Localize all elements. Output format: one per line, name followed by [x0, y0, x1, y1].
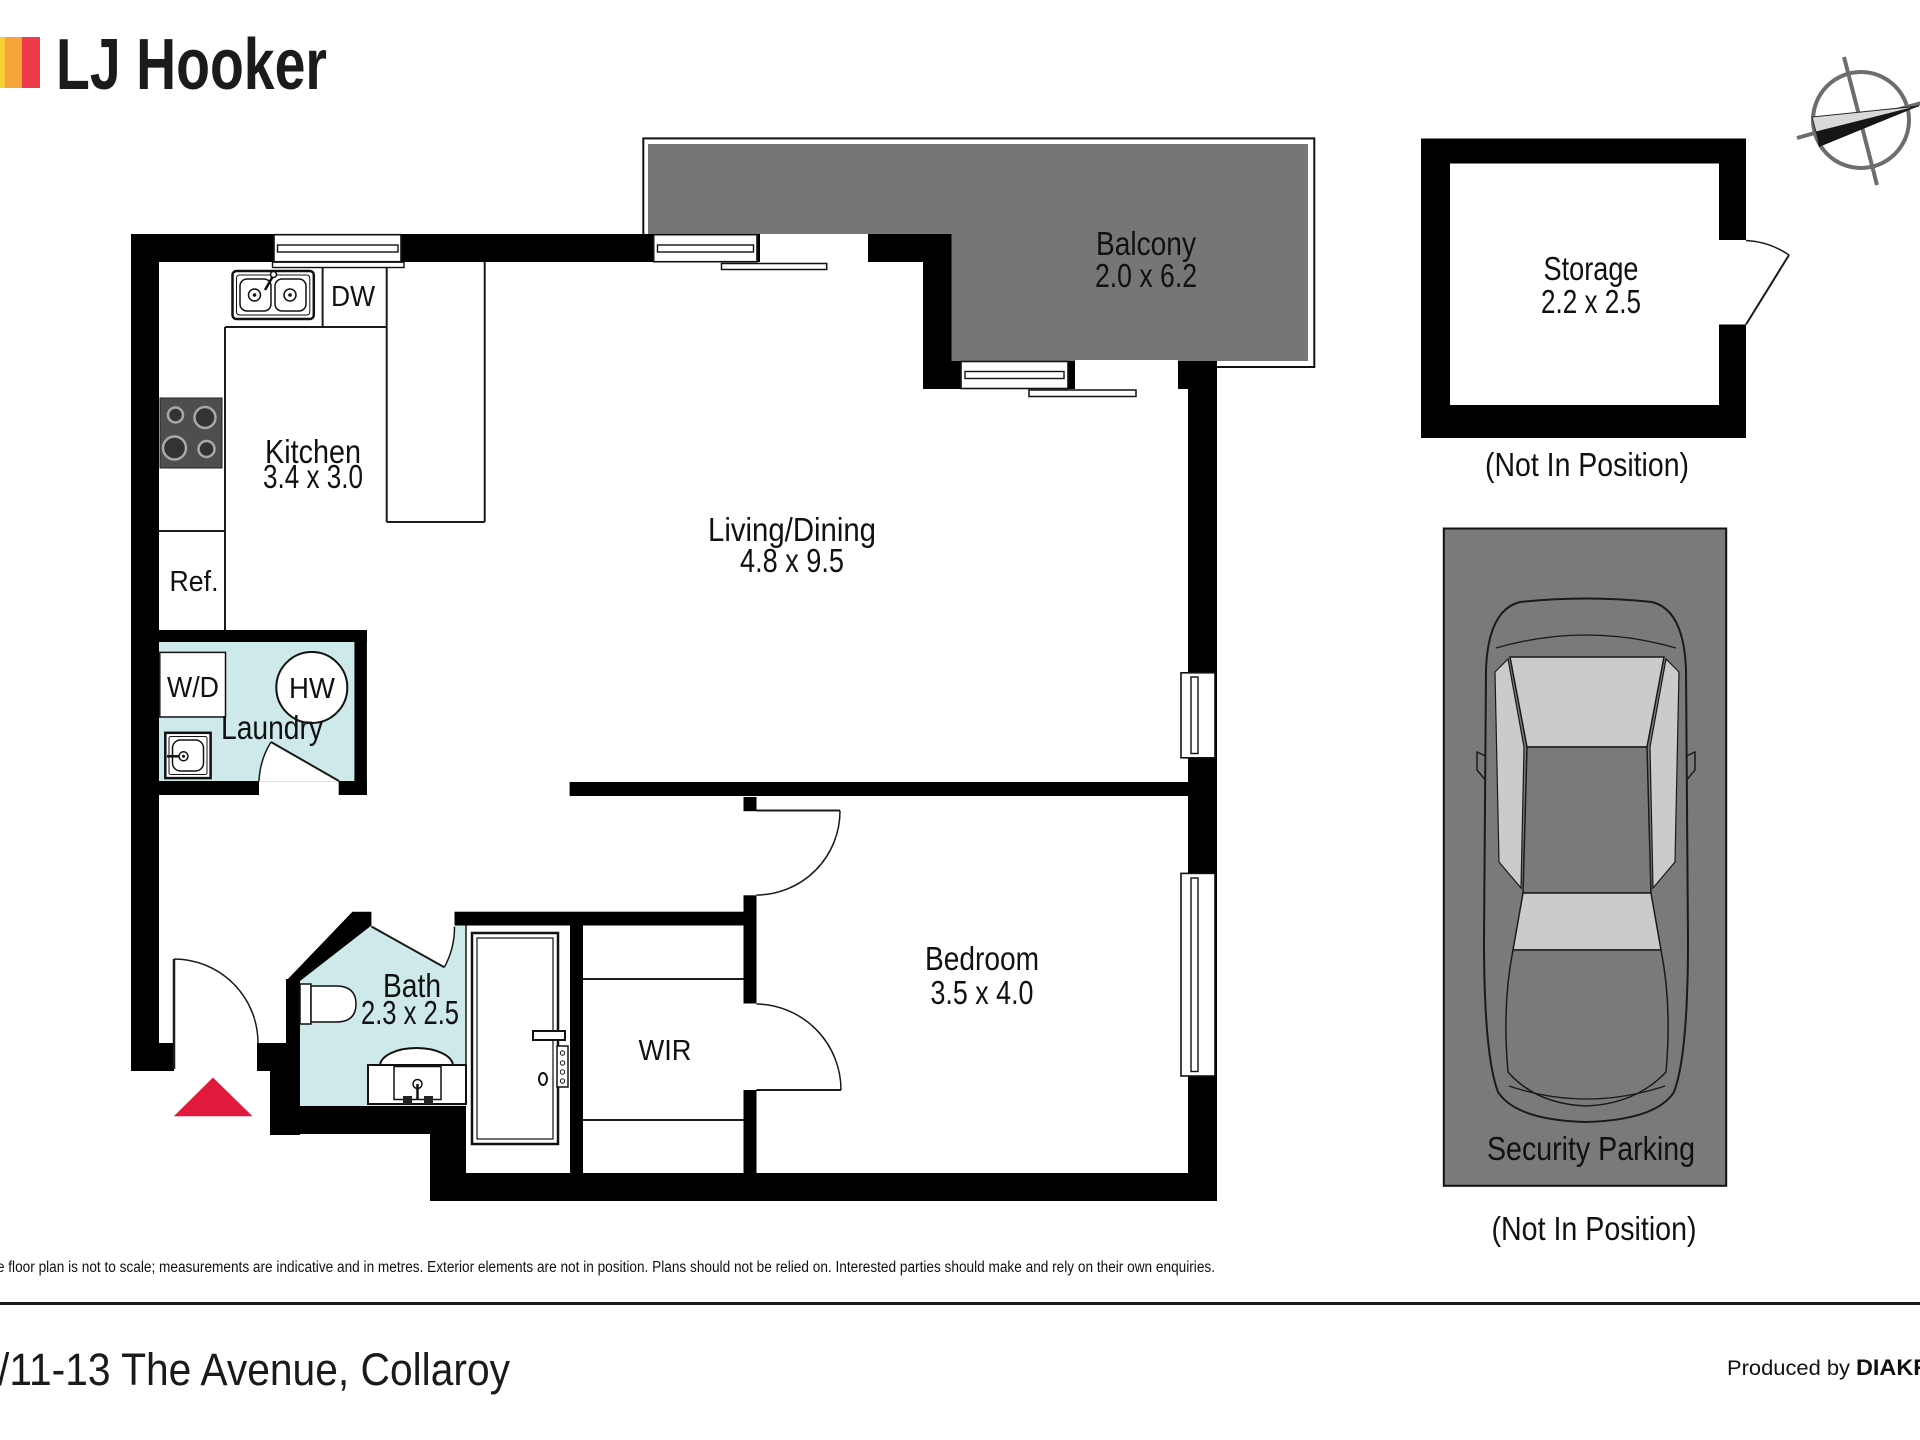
svg-text:(Not In Position): (Not In Position)	[1492, 1210, 1697, 1247]
svg-text:The floor plan is not to scale: The floor plan is not to scale; measurem…	[0, 1259, 1215, 1276]
svg-text:4.8 x 9.5: 4.8 x 9.5	[740, 542, 844, 579]
svg-text:(Not In Position): (Not In Position)	[1485, 446, 1689, 483]
svg-text:W/D: W/D	[167, 672, 219, 704]
svg-text:3.5 x 4.0: 3.5 x 4.0	[931, 974, 1034, 1011]
svg-text:Ref.: Ref.	[170, 566, 219, 598]
svg-text:DW: DW	[331, 281, 376, 313]
svg-text:Security Parking: Security Parking	[1487, 1130, 1695, 1167]
svg-text:Storage: Storage	[1544, 250, 1639, 287]
svg-text:/11-13 The Avenue, Collaroy: /11-13 The Avenue, Collaroy	[0, 1344, 510, 1395]
svg-text:3.4 x 3.0: 3.4 x 3.0	[263, 458, 363, 495]
svg-text:Laundry: Laundry	[221, 709, 323, 746]
svg-text:2.2 x 2.5: 2.2 x 2.5	[1541, 283, 1641, 320]
svg-text:HW: HW	[289, 673, 336, 705]
svg-text:Bedroom: Bedroom	[925, 940, 1039, 977]
svg-text:LJ Hooker: LJ Hooker	[56, 25, 327, 105]
svg-text:Produced by: Produced by	[1727, 1357, 1851, 1380]
svg-text:2.3 x 2.5: 2.3 x 2.5	[361, 994, 459, 1031]
svg-text:WIR: WIR	[639, 1035, 692, 1067]
svg-text:2.0 x 6.2: 2.0 x 6.2	[1095, 257, 1197, 294]
svg-text:DIAKRIT: DIAKRIT	[1856, 1355, 1920, 1380]
